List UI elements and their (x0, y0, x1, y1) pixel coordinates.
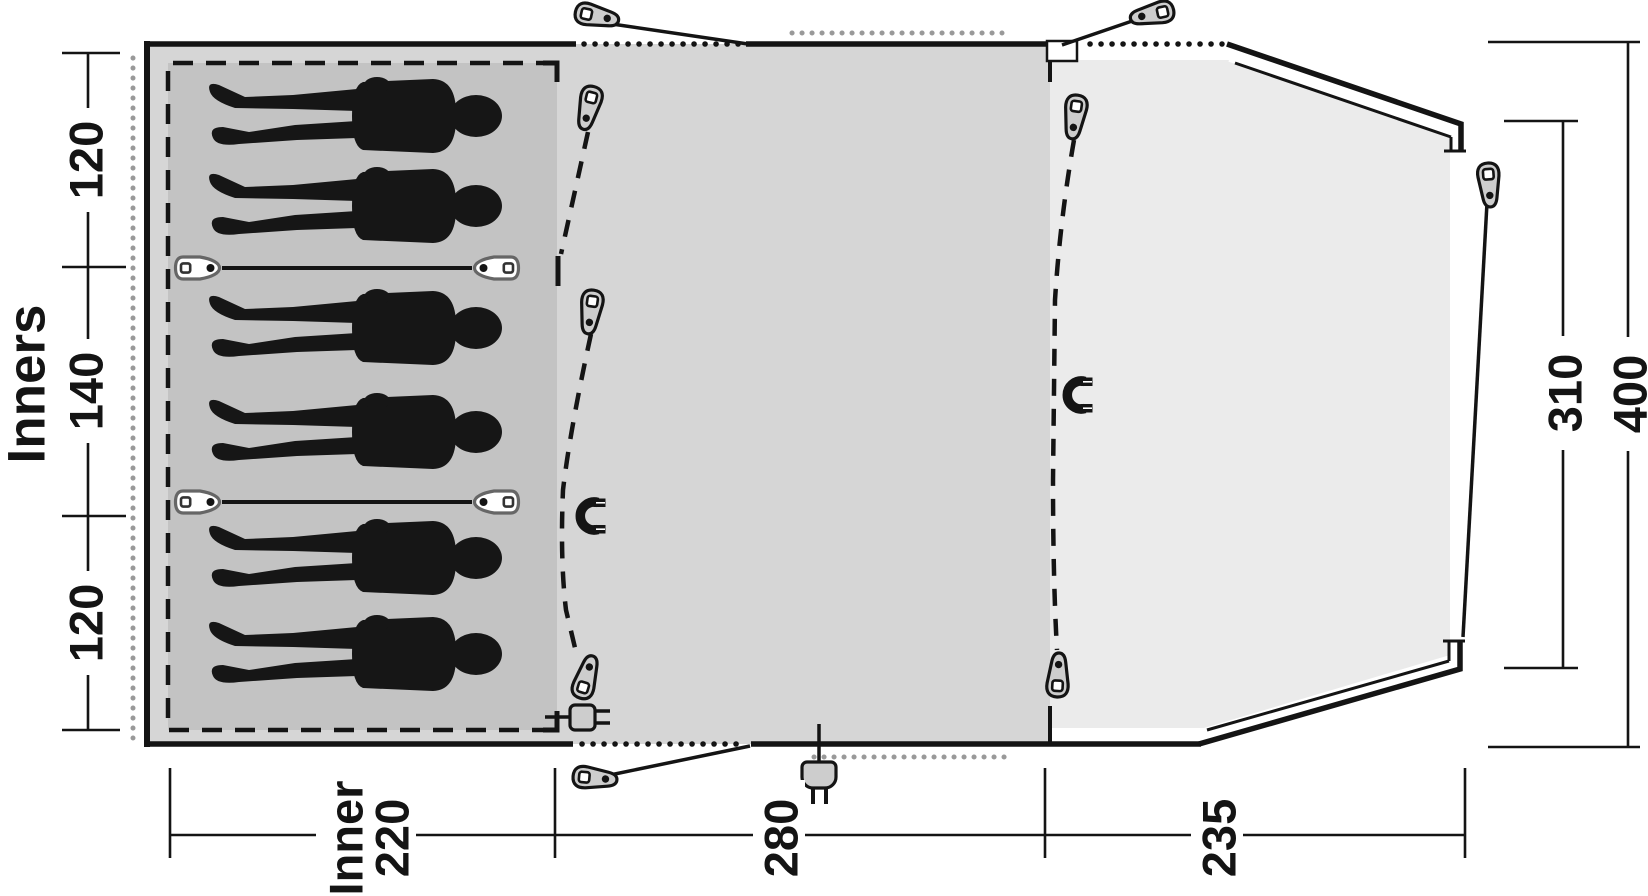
guy-peg-icon (572, 766, 618, 791)
guy-line (612, 24, 748, 44)
dim-label-280: 280 (754, 799, 807, 877)
guy-peg-icon (573, 1, 620, 31)
inners-axis-label: Inners (0, 304, 57, 463)
guy-peg-icon (1128, 0, 1175, 29)
dim-label-400: 400 (1603, 355, 1648, 433)
floorplan-svg: Inners 120 140 120 Inner 220 280 235 310… (0, 0, 1648, 896)
toggle-icon (176, 491, 220, 513)
dim-label-235: 235 (1192, 799, 1245, 877)
guy-line (610, 746, 750, 775)
dim-label-left-120-bottom: 120 (59, 584, 112, 662)
tent-floorplan-diagram: Inners 120 140 120 Inner 220 280 235 310… (0, 0, 1648, 896)
porch-area (1050, 60, 1450, 728)
toggle-icon (475, 257, 519, 279)
guy-line (1062, 18, 1141, 45)
toggle-icon (176, 257, 220, 279)
guy-peg-icon (1477, 162, 1501, 207)
cable-entry-icon (570, 705, 595, 730)
dim-label-inner-220: 220 (365, 799, 418, 877)
power-plug-icon (802, 762, 836, 788)
dim-label-left-120-top: 120 (59, 121, 112, 199)
toggle-icon (475, 491, 519, 513)
dim-label-left-140: 140 (59, 352, 112, 430)
guy-line (1463, 203, 1487, 637)
dim-label-310: 310 (1538, 354, 1591, 432)
